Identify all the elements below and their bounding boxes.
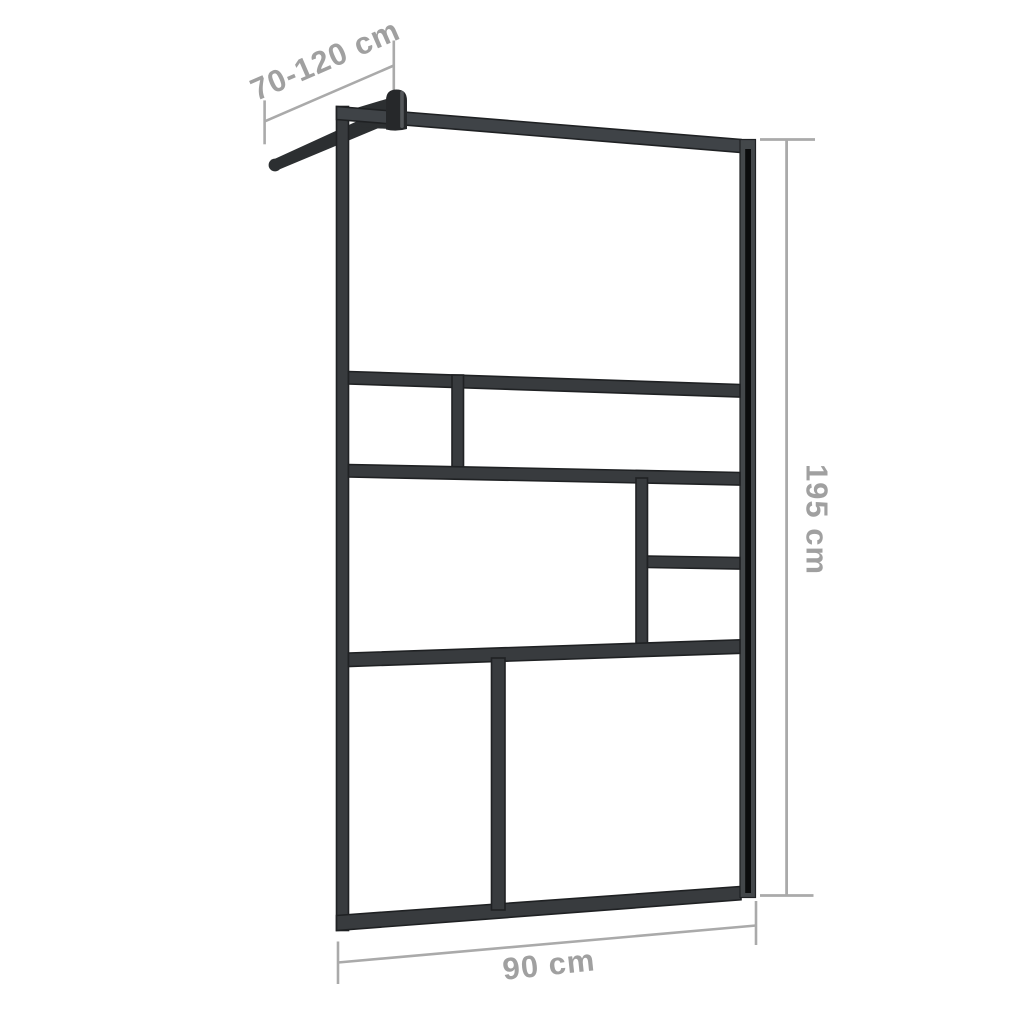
svg-text:195 cm: 195 cm xyxy=(800,464,835,575)
